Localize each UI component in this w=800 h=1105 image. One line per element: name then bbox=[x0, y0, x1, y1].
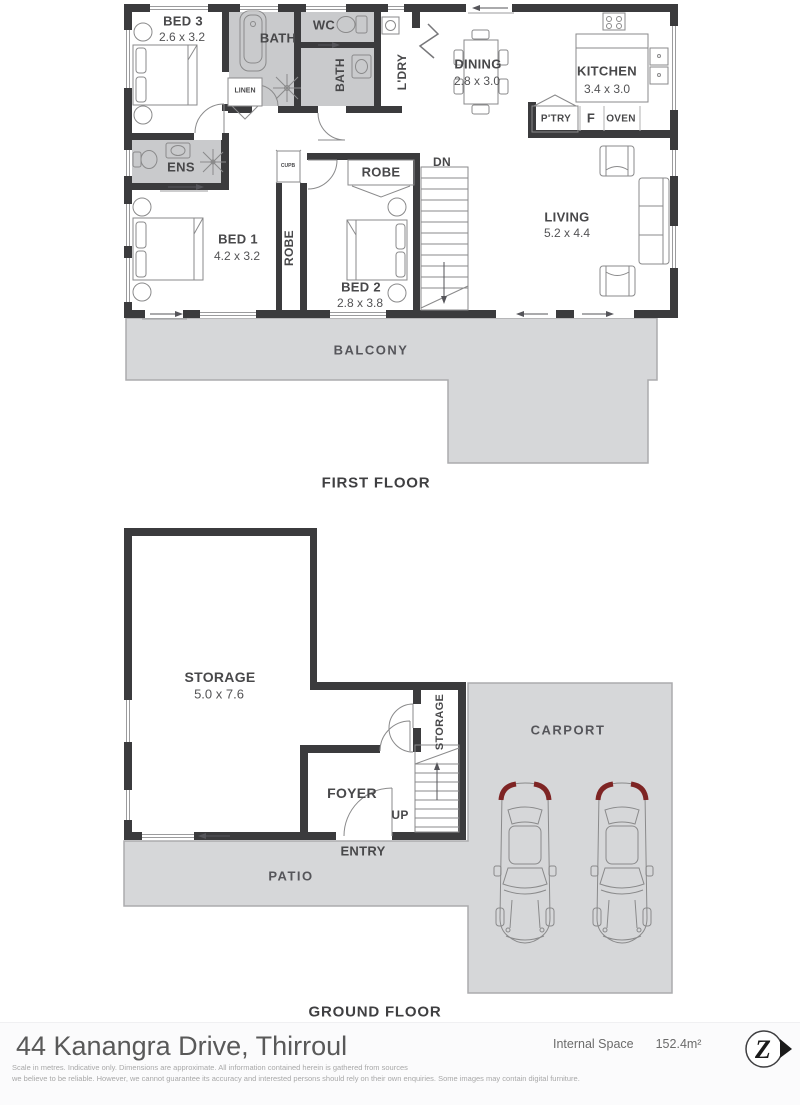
disclaimer-line-1: Scale in metres. Indicative only. Dimens… bbox=[12, 1063, 408, 1072]
window bbox=[124, 30, 132, 88]
room-label-storage: STORAGE bbox=[184, 669, 255, 685]
wall bbox=[300, 745, 308, 840]
sliding-door bbox=[496, 310, 556, 318]
wall bbox=[413, 153, 420, 310]
internal-space-label: Internal Space bbox=[553, 1037, 634, 1051]
balcony-area bbox=[126, 318, 657, 463]
door-opening bbox=[222, 72, 229, 104]
dining-table-icon bbox=[454, 30, 508, 114]
window bbox=[670, 226, 678, 268]
room-label-foyer: FOYER bbox=[327, 785, 377, 801]
room-dims-bed3: 2.6 x 3.2 bbox=[159, 30, 205, 44]
room-dims-bed1: 4.2 x 3.2 bbox=[214, 249, 260, 263]
cooktop-icon bbox=[603, 13, 625, 30]
logo-letter: Z bbox=[754, 1035, 771, 1064]
closet-door-chevron bbox=[534, 95, 576, 106]
disclaimer-line-2: we believe to be reliable. However, we c… bbox=[12, 1074, 580, 1083]
room-label-ptry: P'TRY bbox=[541, 114, 571, 125]
room-label-oven: OVEN bbox=[606, 114, 636, 125]
door-swing bbox=[318, 113, 345, 140]
door-swing bbox=[195, 104, 224, 133]
logo-triangle-icon bbox=[780, 1039, 792, 1058]
closet-door-chevron bbox=[276, 173, 301, 183]
floor-caption-ground: GROUND FLOOR bbox=[309, 1004, 442, 1021]
door-opening bbox=[307, 160, 337, 167]
side-table-icon bbox=[388, 284, 406, 302]
room-label-storage2: STORAGE bbox=[434, 694, 446, 750]
wall bbox=[307, 153, 419, 160]
wall bbox=[294, 4, 301, 106]
bed-icon bbox=[133, 45, 197, 105]
room-label-bed2: BED 2 bbox=[341, 280, 381, 295]
room-dims-storage: 5.0 x 7.6 bbox=[194, 687, 244, 702]
agency-logo: Z bbox=[742, 1027, 794, 1078]
wall bbox=[301, 42, 375, 48]
wall bbox=[412, 4, 420, 28]
sliding-door bbox=[145, 310, 183, 318]
room-label-wc: WC bbox=[313, 18, 335, 33]
room-label-cupb: CUPB bbox=[281, 163, 295, 169]
window bbox=[240, 4, 278, 12]
wall bbox=[310, 528, 317, 688]
side-table-icon bbox=[133, 198, 151, 216]
armchair-icon bbox=[600, 266, 635, 296]
side-table-icon bbox=[133, 283, 151, 301]
room-dims-bed2: 2.8 x 3.8 bbox=[337, 296, 383, 310]
room-label-bed1: BED 1 bbox=[218, 232, 258, 247]
stairs-label-up: UP bbox=[391, 808, 408, 822]
room-label-kitchen: KITCHEN bbox=[577, 64, 637, 79]
room-label-living: LIVING bbox=[544, 210, 589, 225]
side-table-icon bbox=[134, 106, 152, 124]
window bbox=[124, 700, 132, 742]
room-label-bath: BATH bbox=[260, 31, 296, 46]
laundry-tub-icon bbox=[382, 17, 399, 34]
area-label-balcony: BALCONY bbox=[334, 343, 409, 358]
entry-door-opening bbox=[336, 832, 392, 840]
wall-break-zigzag bbox=[420, 24, 438, 58]
address-title: 44 Kanangra Drive, Thirroul bbox=[16, 1031, 347, 1062]
room-label-ens: ENS bbox=[167, 160, 195, 175]
door-swing bbox=[389, 704, 413, 728]
sliding-door bbox=[574, 310, 634, 318]
room-label-fridge: F bbox=[587, 111, 595, 126]
wall bbox=[374, 4, 381, 108]
footer: 44 Kanangra Drive, Thirroul Internal Spa… bbox=[0, 1022, 800, 1105]
sink-icon bbox=[650, 67, 668, 84]
side-table-icon bbox=[134, 23, 152, 41]
wall bbox=[310, 682, 466, 690]
room-label-robe-bed2: ROBE bbox=[362, 165, 401, 180]
door-swing bbox=[380, 721, 410, 751]
stairs-label-dn: DN bbox=[433, 155, 451, 169]
bed-icon bbox=[347, 220, 407, 280]
side-table-icon bbox=[388, 198, 406, 216]
wall bbox=[458, 682, 466, 840]
room-dims-kitchen: 3.4 x 3.0 bbox=[584, 82, 630, 96]
sink-icon bbox=[650, 48, 668, 65]
window bbox=[306, 4, 346, 12]
sofa-icon bbox=[639, 178, 669, 264]
stairs-up-icon bbox=[415, 745, 459, 832]
stairs-down-icon bbox=[421, 167, 468, 310]
window bbox=[124, 790, 132, 820]
armchair-icon bbox=[600, 146, 634, 176]
closet-door-chevron bbox=[352, 186, 410, 197]
wall bbox=[528, 130, 678, 138]
room-label-linen: LINEN bbox=[235, 88, 256, 95]
window bbox=[150, 4, 208, 12]
wall bbox=[124, 183, 228, 190]
room-label-robe-hall: ROBE bbox=[282, 230, 296, 266]
window bbox=[124, 204, 132, 246]
door-swing bbox=[389, 728, 413, 752]
window bbox=[670, 150, 678, 176]
internal-space-value: 152.4m² bbox=[656, 1037, 702, 1051]
window bbox=[670, 26, 678, 110]
door-opening bbox=[194, 133, 222, 140]
door-opening bbox=[252, 106, 278, 113]
floor-caption-first: FIRST FLOOR bbox=[322, 475, 431, 492]
area-label-carport: CARPORT bbox=[531, 723, 606, 738]
window bbox=[388, 4, 404, 12]
sliding-door bbox=[466, 4, 512, 12]
window bbox=[142, 832, 194, 840]
door-opening bbox=[318, 106, 346, 113]
room-dims-dining: 2.8 x 3.0 bbox=[454, 74, 500, 88]
wall bbox=[124, 528, 317, 536]
window bbox=[330, 310, 386, 318]
room-label-bed3: BED 3 bbox=[163, 14, 203, 29]
closet-door-chevron bbox=[276, 150, 301, 160]
internal-space: Internal Space152.4m² bbox=[553, 1037, 701, 1051]
bed-icon bbox=[133, 218, 203, 280]
window bbox=[200, 310, 256, 318]
area-label-patio: PATIO bbox=[268, 869, 313, 884]
wall bbox=[413, 690, 421, 704]
room-label-entry: ENTRY bbox=[340, 844, 385, 859]
room-label-bath2: BATH bbox=[333, 58, 347, 92]
wall bbox=[221, 133, 229, 190]
room-dims-living: 5.2 x 4.4 bbox=[544, 226, 590, 240]
window bbox=[124, 258, 132, 302]
floorplan-page: BED 3 2.6 x 3.2 BATH WC BATH L'DRY LINEN… bbox=[0, 0, 800, 1105]
window bbox=[124, 150, 132, 176]
room-label-dining: DINING bbox=[454, 57, 501, 72]
wall bbox=[300, 745, 380, 753]
wall bbox=[413, 728, 421, 752]
wall bbox=[300, 183, 307, 310]
room-label-ldry: L'DRY bbox=[395, 54, 409, 91]
